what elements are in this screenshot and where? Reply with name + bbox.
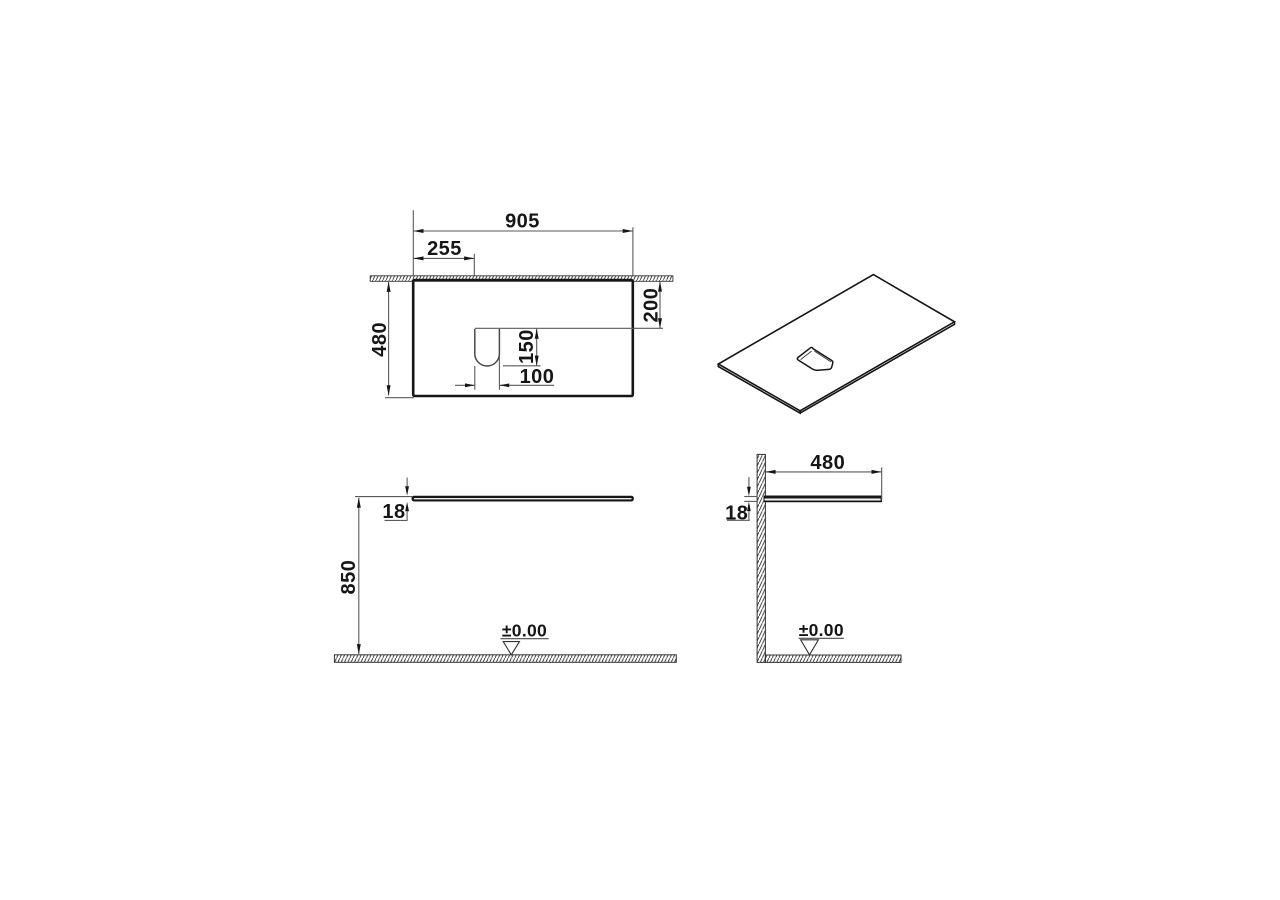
svg-text:200: 200 [641, 288, 663, 323]
svg-text:905: 905 [505, 211, 540, 233]
svg-text:18: 18 [725, 502, 748, 524]
svg-text:480: 480 [369, 322, 391, 357]
svg-text:850: 850 [338, 560, 360, 595]
svg-text:480: 480 [810, 452, 845, 474]
svg-text:±0.00: ±0.00 [799, 620, 844, 640]
svg-text:18: 18 [382, 501, 405, 523]
svg-text:255: 255 [427, 238, 462, 260]
svg-text:100: 100 [520, 366, 555, 388]
svg-text:±0.00: ±0.00 [502, 621, 547, 641]
svg-text:150: 150 [516, 329, 538, 364]
